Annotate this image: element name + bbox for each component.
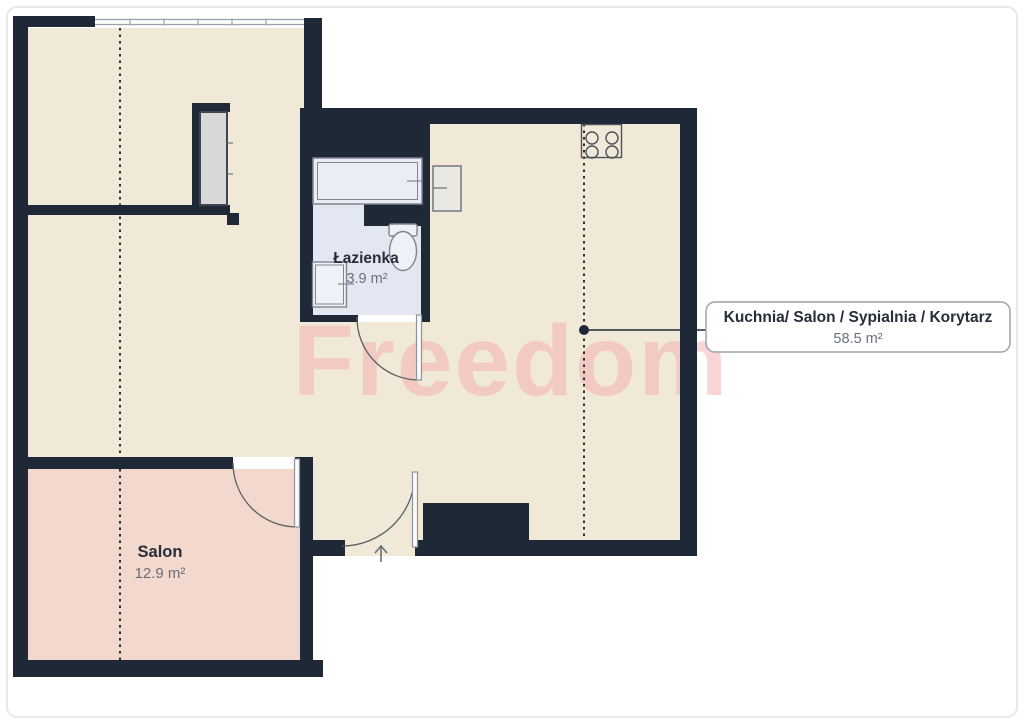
wall-segment: [423, 503, 529, 543]
wall-segment: [192, 103, 200, 205]
wall-segment: [13, 457, 233, 469]
bathtub: [313, 158, 422, 204]
watermark-text: Freedom: [293, 305, 729, 417]
wall-segment: [192, 103, 230, 112]
bathroom-area: 3.9 m²: [346, 271, 387, 287]
wall-segment: [304, 18, 322, 110]
label-box-title: Kuchnia/ Salon / Sypialnia / Korytarz: [724, 309, 993, 326]
bathroom-label: Łazienka: [333, 250, 399, 267]
wall-segment: [13, 660, 323, 677]
window-frame: [95, 17, 304, 27]
wall-segment: [300, 108, 313, 322]
wall-segment: [300, 108, 430, 158]
window: [95, 17, 304, 27]
floorplan-svg: Freedom: [0, 0, 1024, 724]
label-box[interactable]: Kuchnia/ Salon / Sypialnia / Korytarz 58…: [706, 302, 1010, 352]
salon-area: 12.9 m²: [135, 565, 186, 582]
wall-segment: [311, 540, 345, 556]
wall-segment: [300, 457, 313, 677]
wall-segment: [13, 18, 28, 677]
wall-segment: [13, 16, 95, 27]
wall-segment: [13, 205, 230, 215]
label-box-area: 58.5 m²: [833, 331, 882, 347]
wall-segment: [227, 213, 239, 225]
washing-machine: [433, 166, 461, 211]
salon-label: Salon: [138, 543, 183, 561]
wall-segment: [300, 315, 358, 322]
floorplan-page: Freedom: [0, 0, 1024, 724]
wall-segment: [680, 108, 697, 556]
